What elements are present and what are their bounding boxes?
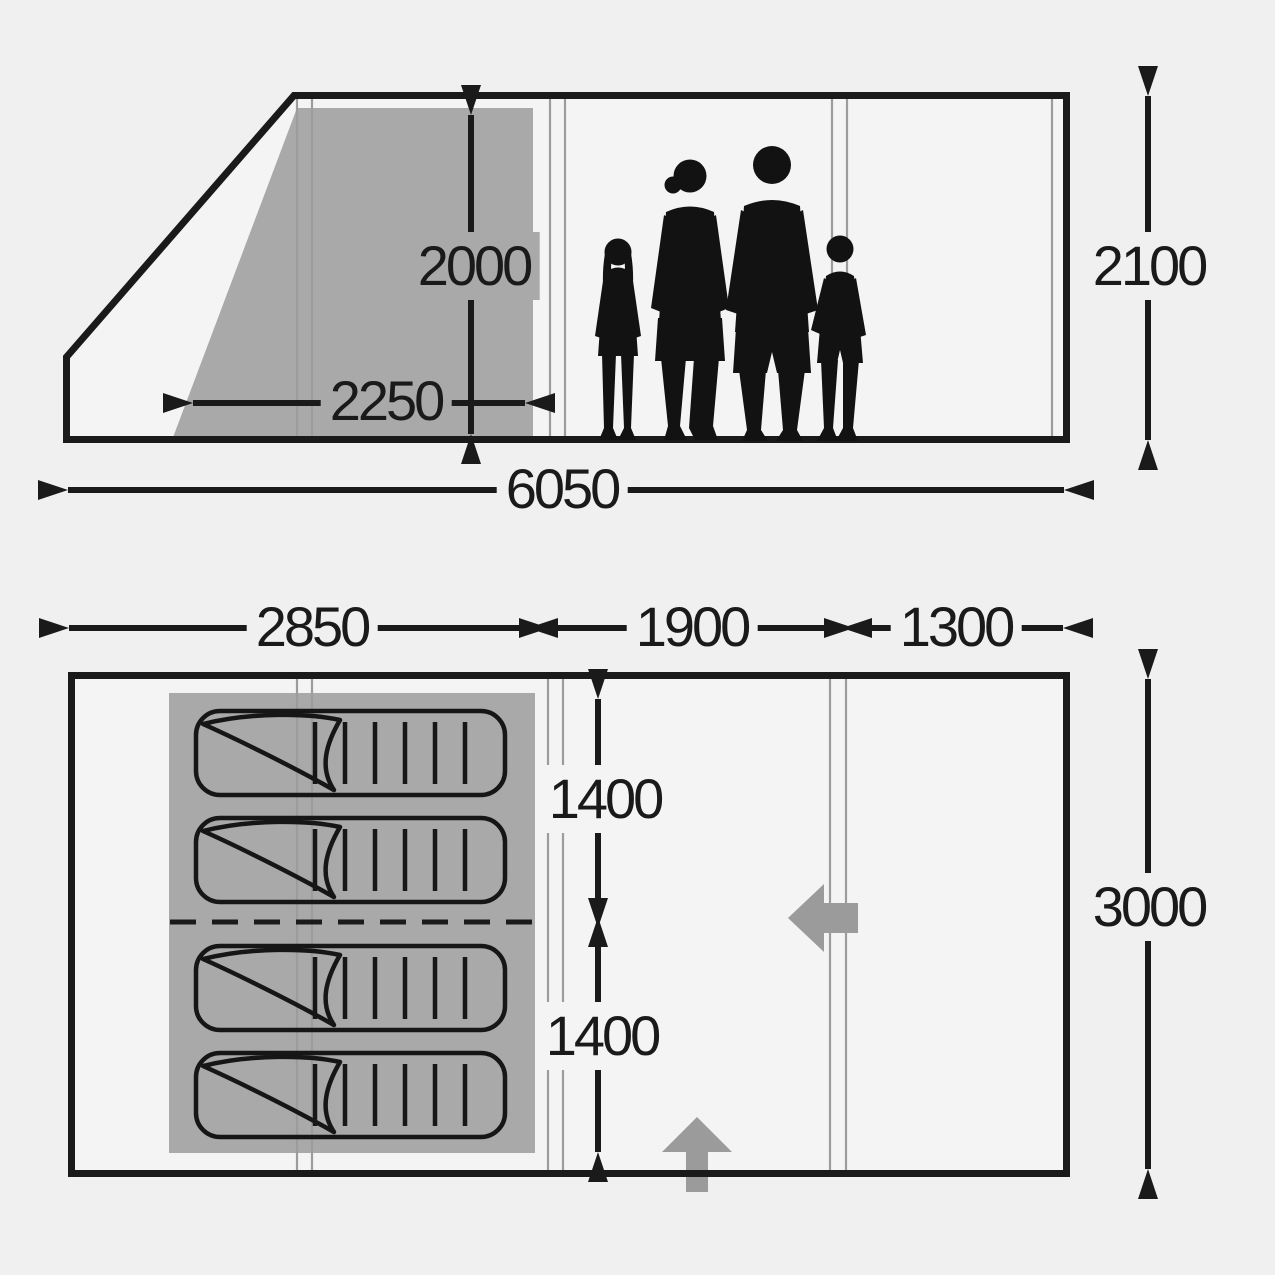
dim-label-inner-width: 2250 [321,367,452,435]
dim-label-inner-height: 2000 [409,232,540,300]
dim-label-living-section: 1900 [627,593,758,661]
dim-label-bedroom-section: 2850 [247,593,378,661]
dim-label-porch-section: 1300 [891,593,1022,661]
tent-dimension-diagram: 2000 2250 6050 2100 2850 1900 1300 1400 … [0,0,1275,1275]
dim-label-total-length: 6050 [497,455,628,523]
floor-plan [69,628,1148,1192]
dim-label-cabin-front-depth: 1400 [540,765,671,833]
side-elevation [67,96,1149,491]
dim-label-total-width: 3000 [1084,873,1215,941]
dim-label-standing-height: 2100 [1084,232,1215,300]
dim-label-cabin-rear-depth: 1400 [537,1002,668,1070]
